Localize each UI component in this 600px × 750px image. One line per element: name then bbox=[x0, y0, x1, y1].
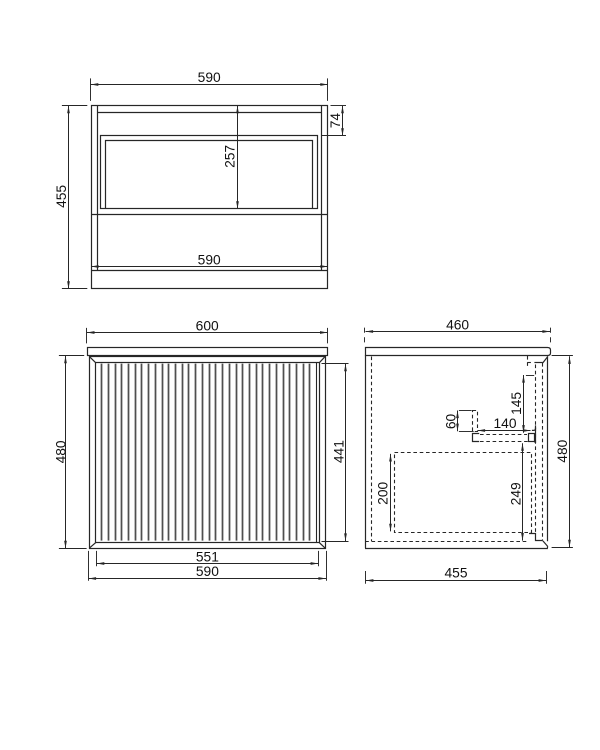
svg-text:551: 551 bbox=[196, 550, 219, 565]
svg-text:480: 480 bbox=[555, 439, 570, 462]
svg-text:200: 200 bbox=[375, 481, 390, 504]
svg-text:140: 140 bbox=[493, 416, 516, 431]
svg-text:590: 590 bbox=[198, 70, 221, 85]
svg-text:460: 460 bbox=[446, 318, 469, 333]
svg-text:590: 590 bbox=[196, 564, 219, 579]
svg-text:257: 257 bbox=[222, 145, 237, 168]
svg-text:480: 480 bbox=[53, 440, 68, 463]
svg-text:74: 74 bbox=[328, 113, 343, 129]
svg-text:590: 590 bbox=[198, 252, 221, 267]
svg-text:455: 455 bbox=[444, 566, 467, 581]
svg-text:249: 249 bbox=[508, 482, 523, 505]
svg-text:455: 455 bbox=[54, 185, 69, 208]
svg-text:60: 60 bbox=[444, 414, 459, 430]
svg-text:145: 145 bbox=[509, 392, 524, 415]
svg-text:441: 441 bbox=[331, 440, 346, 463]
svg-text:600: 600 bbox=[196, 318, 219, 333]
